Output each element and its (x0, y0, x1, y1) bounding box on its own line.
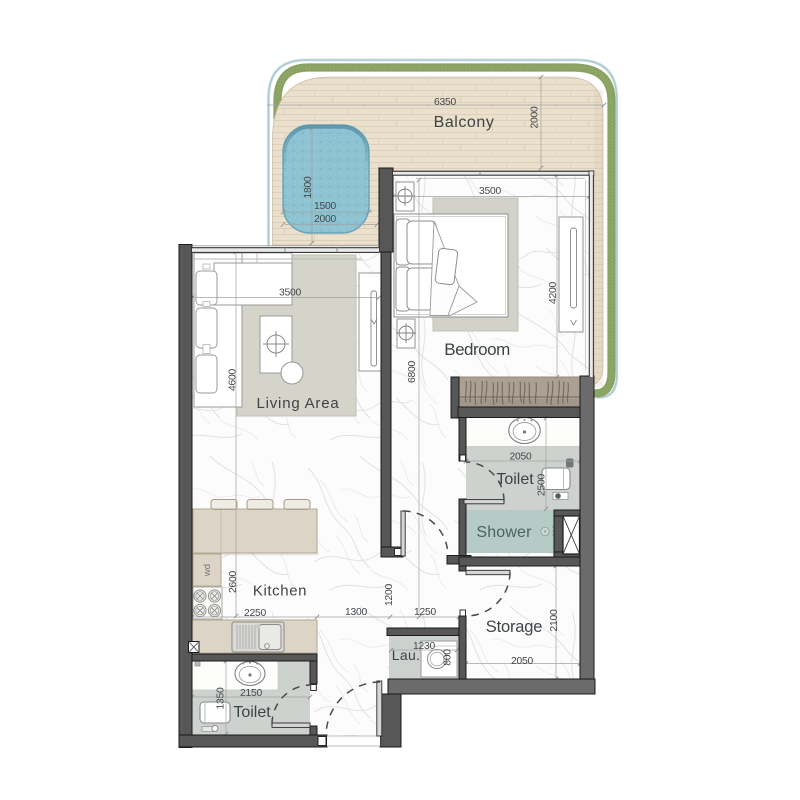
svg-text:1350: 1350 (216, 687, 227, 709)
svg-text:2500: 2500 (537, 474, 548, 496)
svg-text:Toilet: Toilet (233, 704, 271, 721)
svg-text:2000: 2000 (314, 214, 336, 225)
svg-text:2150: 2150 (240, 688, 262, 699)
svg-text:Balcony: Balcony (434, 114, 495, 131)
svg-text:Storage: Storage (486, 618, 542, 636)
svg-text:1250: 1250 (414, 607, 436, 618)
svg-text:1230: 1230 (413, 641, 435, 652)
svg-text:1300: 1300 (345, 607, 367, 618)
svg-text:1800: 1800 (303, 176, 314, 198)
svg-text:Toilet: Toilet (496, 471, 534, 488)
svg-text:2100: 2100 (549, 609, 560, 631)
svg-text:2050: 2050 (510, 452, 532, 463)
svg-text:4200: 4200 (548, 282, 559, 304)
svg-text:6350: 6350 (434, 97, 456, 108)
svg-text:3500: 3500 (279, 288, 301, 299)
svg-text:2250: 2250 (244, 608, 266, 619)
svg-text:Kitchen: Kitchen (253, 583, 307, 600)
svg-text:3500: 3500 (479, 186, 501, 197)
svg-text:Shower: Shower (476, 524, 532, 541)
svg-text:2600: 2600 (228, 571, 239, 593)
svg-text:2000: 2000 (530, 106, 541, 128)
svg-text:1500: 1500 (314, 201, 336, 212)
svg-text:1200: 1200 (384, 584, 395, 606)
svg-text:wd: wd (202, 564, 213, 577)
svg-text:6800: 6800 (407, 361, 418, 383)
svg-text:Bedroom: Bedroom (444, 340, 510, 359)
svg-text:800: 800 (443, 649, 454, 666)
svg-text:Living Area: Living Area (256, 395, 339, 412)
svg-text:2050: 2050 (511, 656, 533, 667)
svg-text:4600: 4600 (228, 369, 239, 391)
